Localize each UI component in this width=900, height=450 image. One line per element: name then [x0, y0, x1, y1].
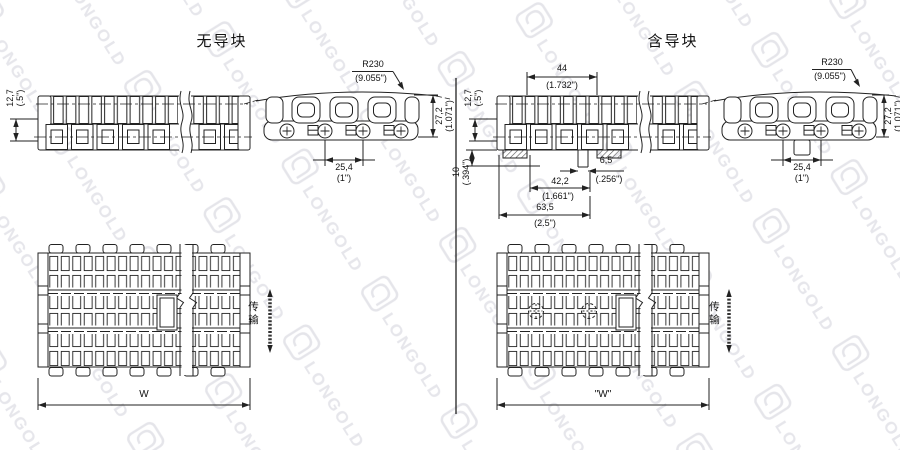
dim-value-mm: 27,2: [434, 100, 444, 132]
dim-value-in: (.5"): [15, 89, 25, 107]
left-width-dim: W: [139, 390, 148, 400]
left-flow-label: 传输: [247, 301, 260, 326]
right-tab-dim-in: (.256"): [596, 174, 623, 184]
dim-value-mm: 12,7: [5, 89, 15, 107]
left-side-view: [10, 91, 252, 153]
left-thickness-dim: 12,7 (.5"): [5, 89, 25, 107]
right-blockwidth-dim-in: (1.732"): [546, 80, 578, 90]
right-overall-dim-mm: 63,5: [536, 202, 554, 212]
right-height-dim: 27,2 (1.071"): [883, 100, 900, 132]
right-blockwidth-dim-mm: 44: [557, 63, 567, 73]
watermark-pattern: [0, 0, 900, 450]
right-blockheight-dim: 10 (.394"): [451, 159, 471, 186]
left-pitch-dim-mm: 25,4: [335, 162, 353, 172]
right-span-dim-mm: 42,2: [551, 176, 569, 186]
drawing-page: { "watermark": { "brand": "LONGOLD" }, "…: [0, 0, 900, 450]
right-overall-dim-in: (2.5"): [534, 218, 556, 228]
left-section-title: 无导块: [196, 30, 247, 51]
right-tab-dim-mm: 6,5: [600, 155, 613, 165]
right-width-dim: "W": [595, 390, 612, 400]
right-pitch-dim-in: (1"): [795, 173, 809, 183]
left-pitch-dim-in: (1"): [337, 173, 351, 183]
right-span-dim-in: (1.661"): [542, 191, 574, 201]
left-radius-dim-mm: R230: [362, 59, 384, 69]
left-radius-dim-in: (9.055"): [355, 73, 387, 83]
dim-value-mm: 12,7: [463, 89, 473, 107]
left-height-dim: 27,2 (1.071"): [434, 100, 454, 132]
dim-value-mm: 10: [451, 159, 461, 186]
right-flow-label: 传输: [708, 301, 721, 326]
dim-value-mm: 27,2: [883, 100, 893, 132]
right-radius-dim-in: (9.055"): [814, 71, 846, 81]
dim-value-in: (.394"): [461, 159, 471, 186]
right-section-title: 含导块: [647, 30, 698, 51]
right-radius-dim-mm: R230: [821, 57, 843, 67]
dim-value-in: (.5"): [473, 89, 483, 107]
right-pitch-dim-mm: 25,4: [793, 162, 811, 172]
dim-value-in: (1.071"): [444, 100, 454, 132]
technical-drawing: LONGOLD: [0, 0, 900, 450]
right-thickness-dim: 12,7 (.5"): [463, 89, 483, 107]
dim-value-in: (1.071"): [893, 100, 900, 132]
